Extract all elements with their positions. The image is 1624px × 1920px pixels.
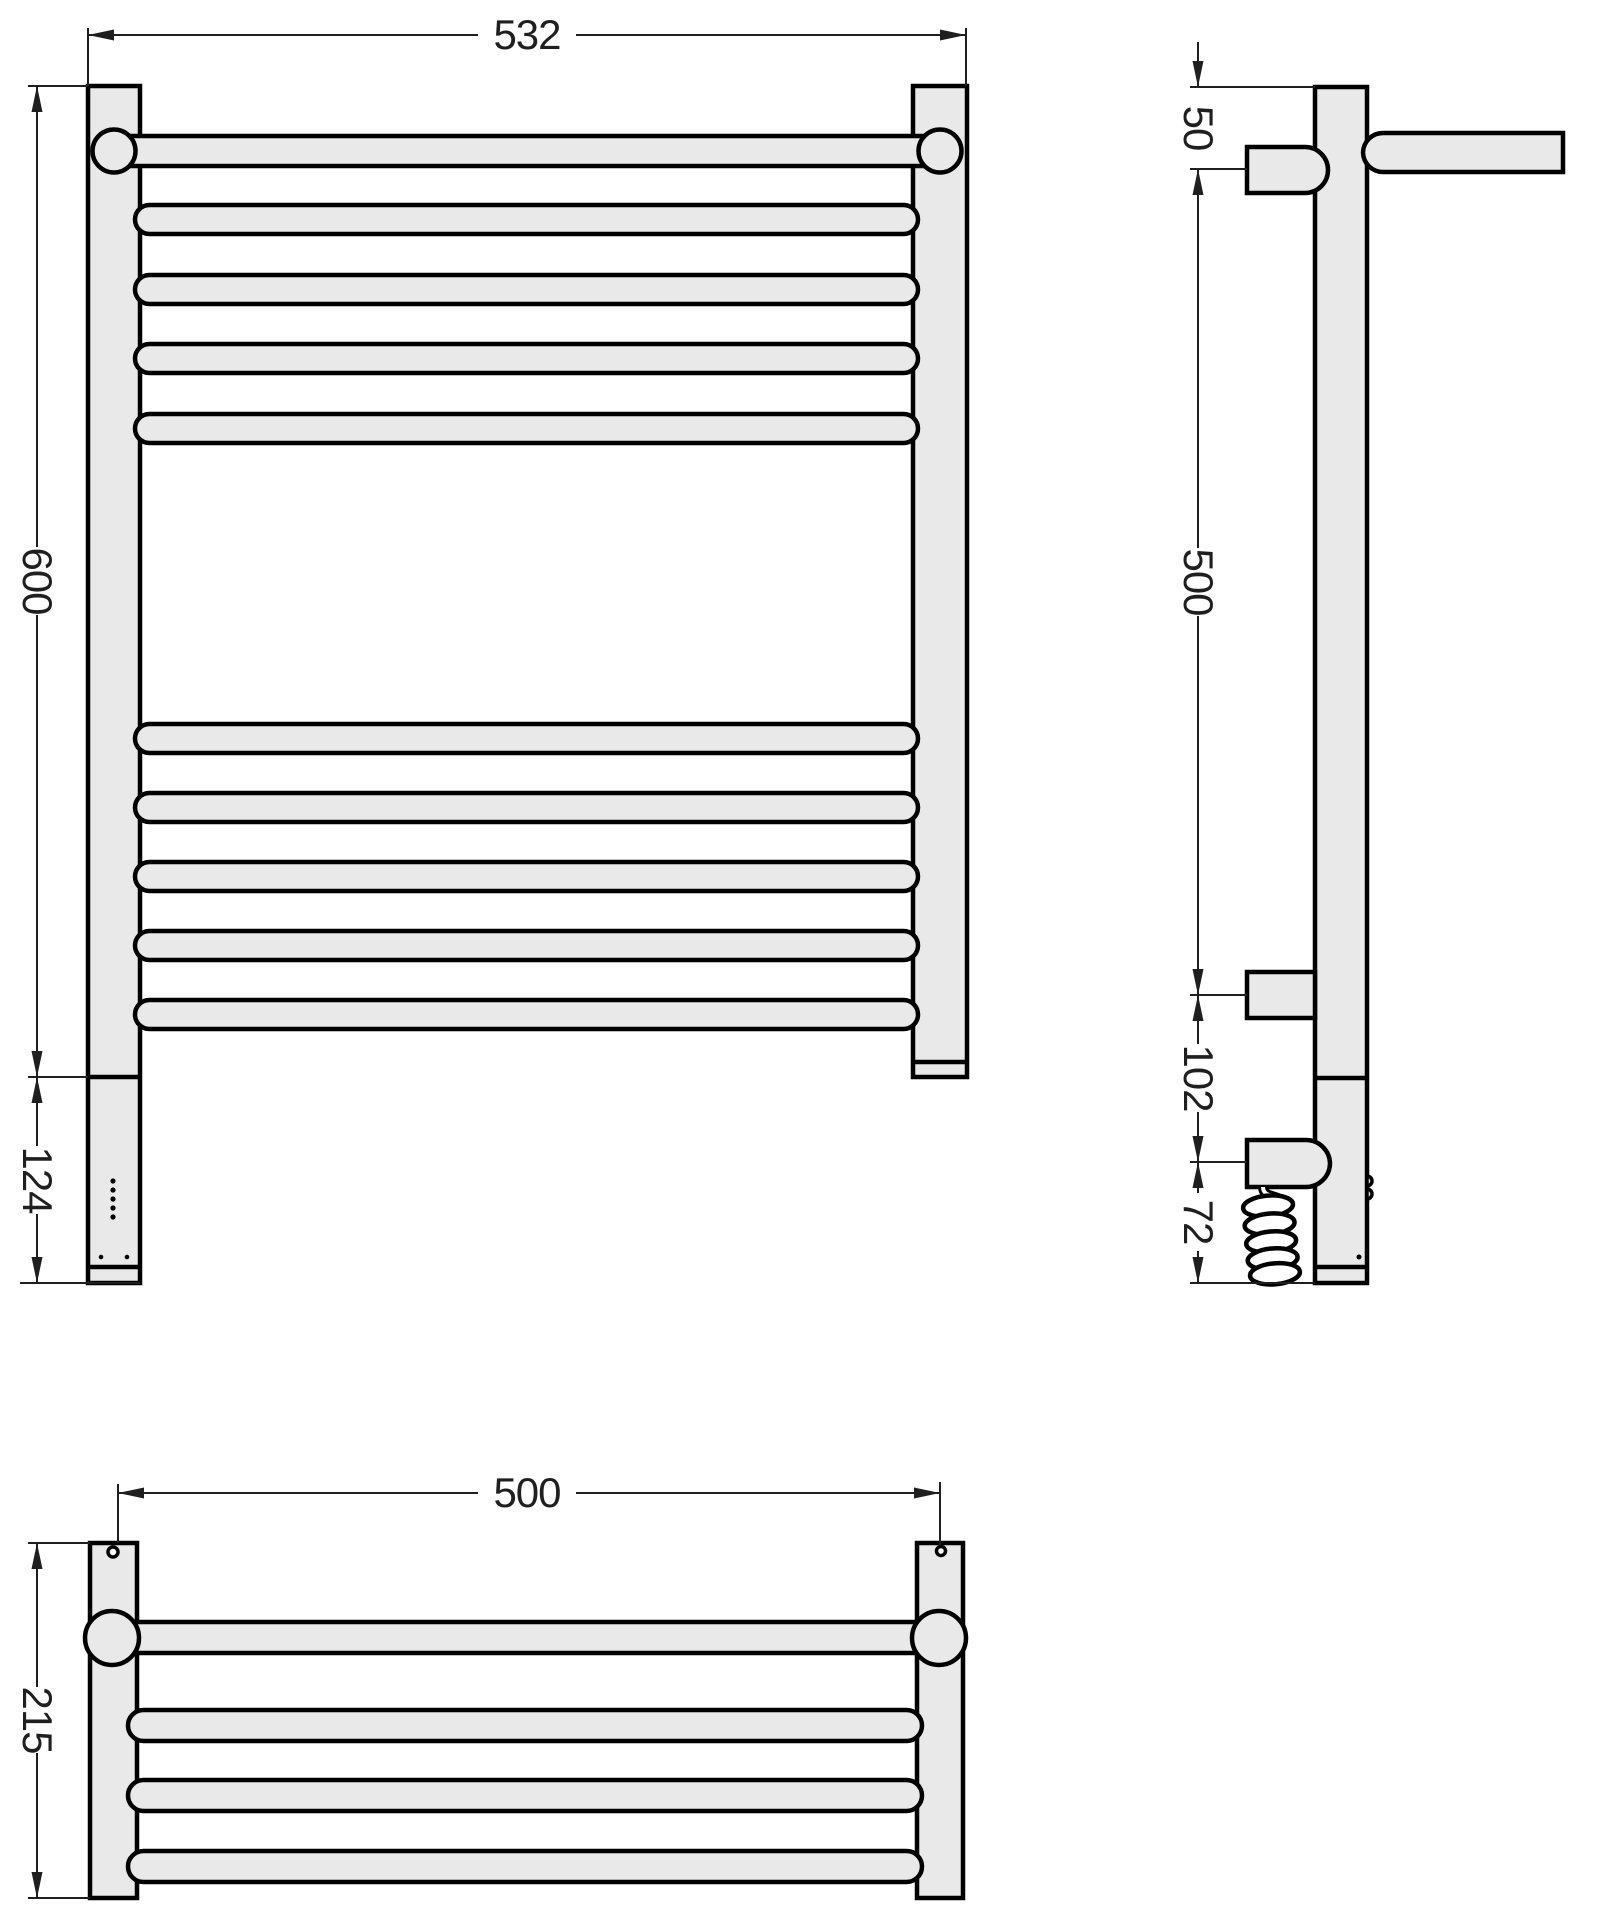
electrical-outlet-box [1247, 1140, 1330, 1187]
rung [135, 724, 918, 753]
switch-bump [1367, 1189, 1372, 1199]
pivot-boss-right [919, 130, 962, 173]
rung [135, 1000, 918, 1029]
rung [135, 931, 918, 960]
rung [135, 414, 918, 443]
rung [135, 793, 918, 822]
indicator-dot-side [1357, 1255, 1362, 1260]
dim-side-bracket-to-outlet: 102 [1175, 995, 1247, 1162]
side-view: 50 500 102 72 [1175, 42, 1563, 1287]
screw-hole-right [937, 1547, 946, 1556]
dim-label-front-height: 600 [14, 547, 61, 614]
coiled-power-cable [1242, 1187, 1301, 1287]
right-post [913, 86, 967, 1077]
dim-front-width: 532 [88, 11, 966, 86]
dim-front-height: 600 [14, 86, 88, 1077]
upper-rungs [135, 205, 918, 443]
dim-label-front-electrical: 124 [14, 1146, 61, 1214]
top-rail-plan [112, 1622, 940, 1653]
dim-label-bottom-depth: 215 [14, 1686, 61, 1753]
dim-label-side-top-offset: 50 [1175, 106, 1222, 151]
rung [135, 344, 918, 373]
left-post [88, 86, 140, 1283]
pivot-boss-plan-left [85, 1611, 139, 1665]
technical-drawing: 532 600 124 [0, 0, 1624, 1920]
wall-bracket-top [1247, 147, 1328, 193]
wall-bracket-bottom [1247, 972, 1315, 1018]
rungs-plan [128, 1710, 922, 1882]
dim-label-side-bracket-spacing: 500 [1175, 548, 1222, 615]
rung [135, 205, 918, 234]
side-post [1315, 87, 1367, 1283]
switch-bump [1367, 1176, 1372, 1186]
rung [128, 1780, 922, 1811]
rung [135, 275, 918, 304]
dim-side-bracket-spacing: 500 [1175, 169, 1222, 995]
bottom-view: 500 215 [14, 1469, 966, 1898]
post-joint-lines [88, 1062, 967, 1267]
dim-bottom-depth: 215 [14, 1543, 90, 1898]
right-bracket-plan [917, 1543, 963, 1898]
dim-label-side-bracket-to-outlet: 102 [1175, 1044, 1222, 1111]
pivot-boss-left [93, 130, 136, 173]
top-rail-side [1363, 133, 1563, 172]
lower-rungs [135, 724, 918, 1029]
dim-bottom-mounting-width: 500 [118, 1469, 940, 1545]
rung [128, 1851, 922, 1882]
dim-label-front-width: 532 [493, 11, 560, 58]
front-view: 532 600 124 [14, 11, 967, 1283]
top-rail [114, 136, 940, 166]
rung [135, 862, 918, 891]
screw-hole-left [108, 1547, 118, 1557]
rung [128, 1710, 922, 1741]
dim-label-side-outlet-to-end: 72 [1175, 1200, 1222, 1245]
dim-label-bottom-mounting-width: 500 [493, 1469, 560, 1516]
pivot-boss-plan-right [912, 1611, 966, 1665]
